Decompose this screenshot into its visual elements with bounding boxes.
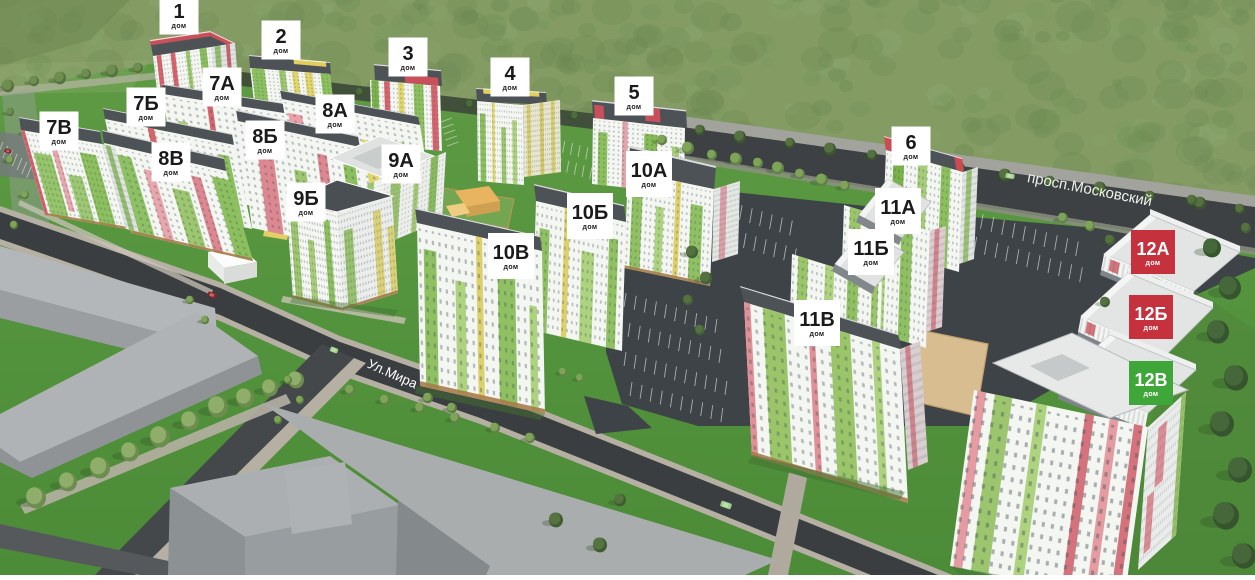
svg-text:5: 5 — [628, 82, 639, 104]
svg-text:дом: дом — [393, 172, 408, 179]
svg-text:дом: дом — [298, 210, 313, 217]
svg-text:дом: дом — [214, 95, 229, 102]
svg-text:11А: 11А — [880, 197, 916, 219]
svg-text:дом: дом — [400, 65, 415, 72]
svg-text:дом: дом — [257, 148, 272, 155]
svg-text:дом: дом — [626, 104, 641, 111]
svg-text:дом: дом — [503, 264, 518, 271]
svg-text:9А: 9А — [388, 150, 414, 172]
svg-text:дом: дом — [1143, 391, 1158, 398]
svg-text:9Б: 9Б — [293, 188, 319, 210]
svg-text:дом: дом — [903, 154, 918, 161]
svg-text:12Б: 12Б — [1135, 304, 1168, 324]
svg-text:3: 3 — [402, 43, 413, 65]
svg-text:10В: 10В — [493, 242, 530, 264]
svg-text:дом: дом — [582, 224, 597, 231]
svg-text:дом: дом — [171, 23, 186, 30]
svg-text:дом: дом — [327, 122, 342, 129]
svg-text:дом: дом — [273, 48, 288, 55]
svg-text:4: 4 — [504, 63, 516, 85]
svg-text:7А: 7А — [209, 73, 235, 95]
svg-text:8В: 8В — [158, 148, 184, 170]
svg-text:дом: дом — [641, 182, 656, 189]
svg-text:6: 6 — [905, 132, 916, 154]
svg-text:7В: 7В — [46, 117, 72, 139]
svg-text:дом: дом — [163, 170, 178, 177]
svg-text:дом: дом — [890, 219, 905, 226]
svg-text:1: 1 — [173, 1, 184, 23]
svg-text:10А: 10А — [631, 160, 668, 182]
svg-text:8Б: 8Б — [252, 126, 278, 148]
svg-text:дом: дом — [863, 260, 878, 267]
svg-text:7Б: 7Б — [133, 93, 159, 115]
svg-text:дом: дом — [1145, 260, 1160, 267]
svg-text:дом: дом — [1143, 325, 1158, 332]
svg-text:дом: дом — [138, 115, 153, 122]
svg-text:11Б: 11Б — [853, 238, 889, 260]
svg-text:дом: дом — [502, 85, 517, 92]
svg-text:12А: 12А — [1136, 239, 1169, 259]
svg-text:дом: дом — [51, 139, 66, 146]
svg-text:2: 2 — [275, 26, 286, 48]
svg-text:11В: 11В — [799, 309, 835, 331]
svg-text:дом: дом — [809, 331, 824, 338]
svg-text:10Б: 10Б — [572, 202, 609, 224]
svg-text:12В: 12В — [1134, 370, 1167, 390]
svg-text:8А: 8А — [322, 100, 348, 122]
